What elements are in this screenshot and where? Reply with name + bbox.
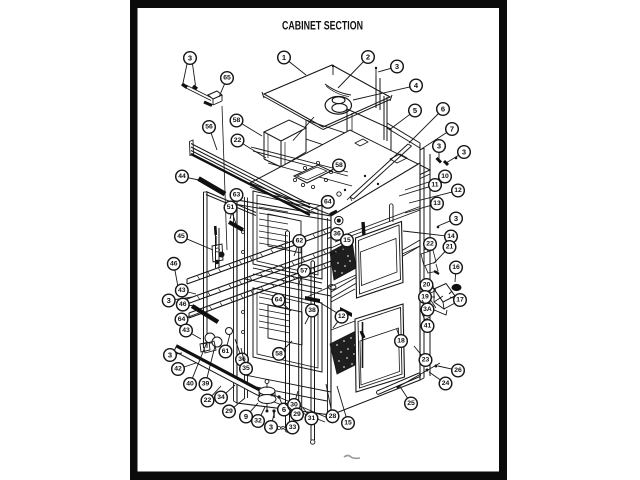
svg-text:65: 65 (223, 75, 231, 82)
svg-text:62: 62 (296, 238, 304, 245)
svg-text:12: 12 (338, 313, 346, 320)
svg-text:39: 39 (202, 381, 210, 388)
svg-text:61: 61 (222, 348, 230, 355)
svg-text:3: 3 (188, 54, 192, 63)
svg-text:22: 22 (426, 241, 434, 248)
svg-text:13: 13 (433, 200, 441, 207)
svg-text:28: 28 (329, 413, 337, 420)
svg-text:34: 34 (217, 394, 225, 401)
svg-text:3: 3 (462, 148, 466, 157)
svg-text:44: 44 (178, 173, 186, 180)
svg-text:20: 20 (423, 282, 431, 289)
svg-text:OR: OR (277, 426, 285, 432)
svg-text:18: 18 (397, 338, 405, 345)
svg-text:12: 12 (454, 187, 462, 194)
svg-text:38: 38 (308, 307, 316, 314)
svg-text:56: 56 (205, 124, 213, 131)
svg-text:21: 21 (446, 244, 454, 251)
svg-text:26: 26 (454, 367, 462, 374)
svg-text:64: 64 (275, 297, 283, 304)
svg-text:3: 3 (167, 296, 171, 305)
svg-text:51: 51 (227, 204, 235, 211)
svg-text:33: 33 (289, 424, 297, 431)
svg-text:64: 64 (178, 316, 186, 323)
svg-text:58: 58 (335, 162, 343, 169)
svg-text:9: 9 (244, 412, 248, 421)
svg-text:57: 57 (300, 268, 308, 275)
svg-text:19: 19 (421, 294, 429, 301)
svg-text:46: 46 (179, 301, 187, 308)
svg-text:22: 22 (204, 397, 212, 404)
svg-text:43: 43 (182, 327, 190, 334)
svg-text:3: 3 (454, 214, 458, 223)
svg-text:29: 29 (225, 408, 233, 415)
svg-text:6: 6 (441, 105, 445, 114)
svg-text:36: 36 (333, 231, 341, 238)
svg-text:29: 29 (293, 411, 301, 418)
svg-text:45: 45 (177, 233, 185, 240)
svg-text:43: 43 (178, 287, 186, 294)
svg-text:32: 32 (254, 418, 262, 425)
svg-text:40: 40 (186, 381, 194, 388)
svg-text:24: 24 (442, 380, 450, 387)
svg-text:11: 11 (431, 182, 438, 189)
svg-text:15: 15 (343, 237, 351, 244)
svg-text:46: 46 (170, 260, 178, 267)
svg-text:6: 6 (282, 405, 286, 414)
svg-text:7: 7 (450, 125, 454, 134)
svg-text:2: 2 (366, 53, 370, 62)
svg-text:25: 25 (407, 400, 415, 407)
svg-text:16: 16 (452, 264, 460, 271)
svg-text:3: 3 (395, 62, 399, 71)
svg-text:64: 64 (324, 198, 332, 205)
svg-text:23: 23 (422, 357, 430, 364)
svg-text:15: 15 (344, 420, 352, 427)
svg-text:42: 42 (174, 366, 182, 373)
svg-text:14: 14 (447, 233, 455, 240)
svg-text:17: 17 (456, 297, 464, 304)
svg-text:63: 63 (233, 192, 241, 199)
svg-text:10: 10 (441, 173, 449, 180)
svg-text:58: 58 (275, 350, 283, 357)
svg-text:41: 41 (424, 323, 432, 330)
svg-text:31: 31 (308, 415, 316, 422)
svg-text:3: 3 (269, 423, 273, 432)
svg-text:22: 22 (234, 137, 242, 144)
svg-text:3: 3 (168, 351, 172, 360)
svg-text:CABINET SECTION: CABINET SECTION (282, 21, 363, 33)
svg-text:3: 3 (437, 142, 441, 151)
svg-text:35: 35 (242, 365, 250, 372)
svg-text:3A: 3A (423, 306, 432, 313)
svg-text:58: 58 (233, 117, 241, 124)
